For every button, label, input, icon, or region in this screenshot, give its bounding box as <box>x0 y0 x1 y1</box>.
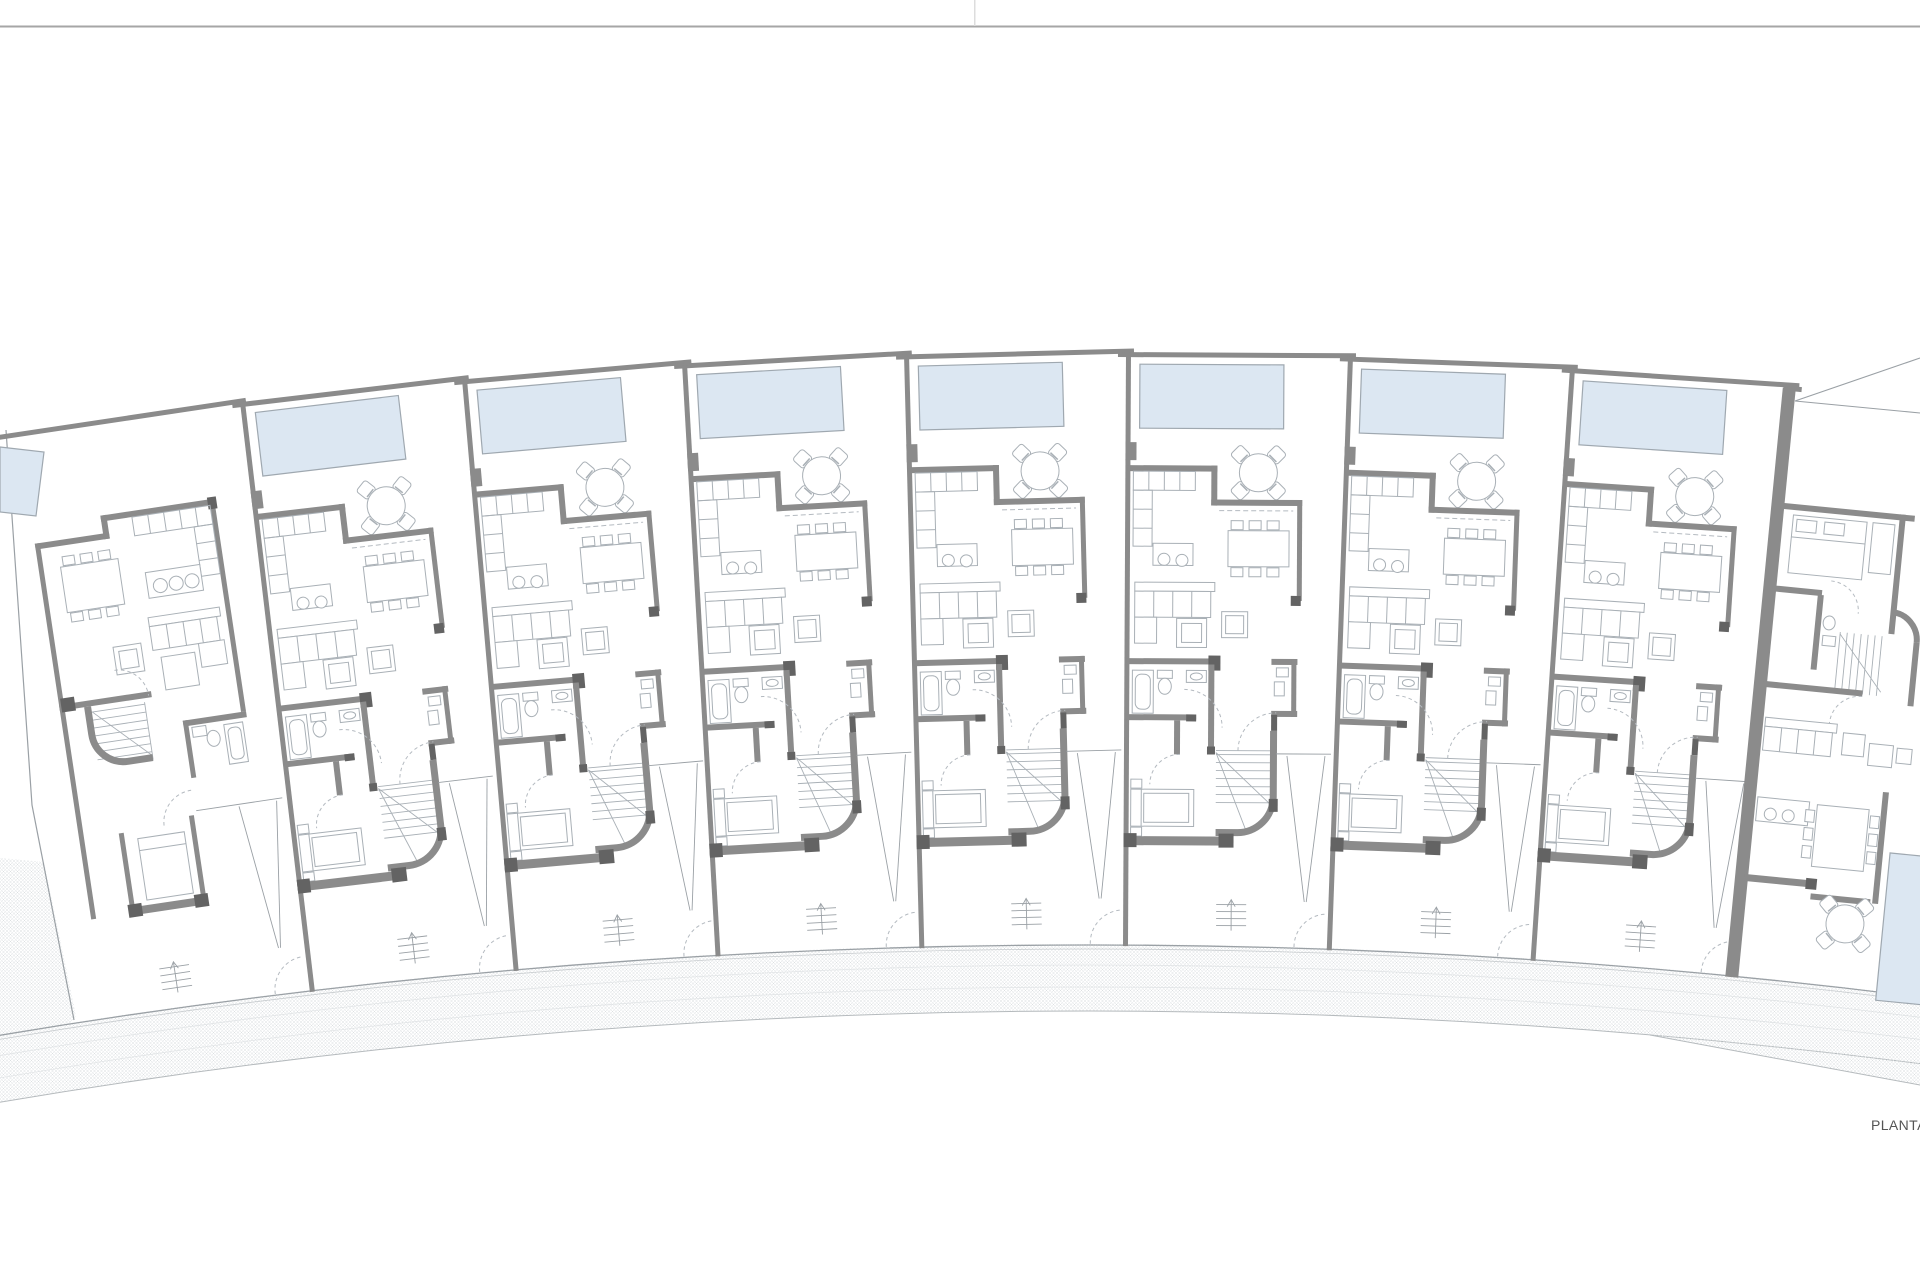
svg-text:PLANTA: PLANTA <box>1871 1117 1920 1133</box>
